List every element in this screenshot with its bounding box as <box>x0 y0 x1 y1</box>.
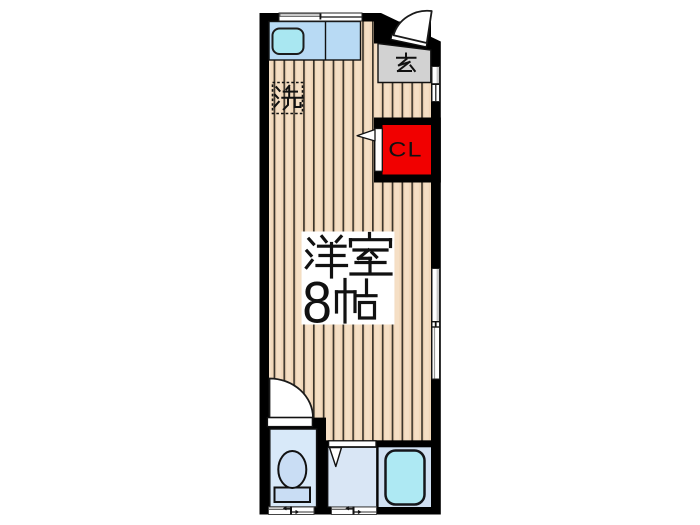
svg-text:CL: CL <box>388 137 422 161</box>
svg-text:8: 8 <box>302 270 332 335</box>
